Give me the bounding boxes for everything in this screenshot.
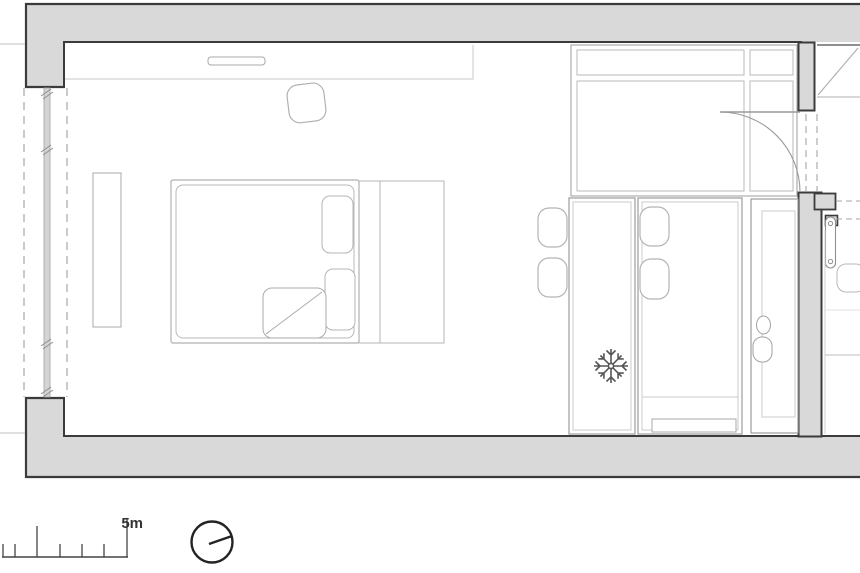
pillow (325, 269, 355, 330)
wardrobe (571, 45, 797, 196)
right-wall-stub (799, 43, 815, 111)
neighbor-fixture (837, 264, 860, 292)
main-room (65, 45, 473, 343)
bench-shelf (93, 173, 121, 327)
radiator (826, 217, 836, 268)
island-outline (569, 198, 635, 434)
chair (640, 207, 669, 246)
neighbor-door-leaf (818, 48, 858, 95)
top-wall (26, 3, 860, 42)
glazing-line (44, 88, 50, 397)
sink-bowl (757, 316, 771, 334)
ceiling-recess-line (65, 45, 473, 79)
pillow (322, 196, 353, 253)
sink-basin (753, 337, 772, 362)
counter-outline (751, 199, 798, 433)
right-wall-arm (815, 194, 836, 210)
top-left-wall-block (26, 3, 65, 88)
floor-plan-canvas: 5m (0, 0, 860, 573)
orientation-dial-icon (192, 522, 233, 563)
double-bed (171, 180, 444, 343)
scale-bar: 5m (2, 515, 143, 557)
wall-console (208, 57, 265, 65)
bottom-wall (26, 437, 860, 478)
armchair (286, 82, 327, 124)
window-wall (24, 88, 67, 397)
chair (538, 258, 567, 297)
chair (640, 259, 669, 299)
counter-appliance (652, 419, 736, 432)
neighbor-area (817, 48, 860, 434)
scale-ticks (3, 519, 127, 557)
bedside-platform (380, 181, 444, 343)
reference-lines (0, 44, 25, 433)
folded-blanket (263, 288, 326, 338)
kitchen-dining (538, 198, 798, 434)
dial-pointer (209, 536, 232, 544)
chair (538, 208, 567, 247)
wardrobe-outline (571, 45, 797, 196)
right-wall-lower (799, 193, 822, 437)
kitchen-counter-right (751, 199, 798, 433)
headboard (359, 181, 380, 343)
scale-label: 5m (121, 515, 143, 532)
kitchen-island-table (569, 198, 635, 434)
